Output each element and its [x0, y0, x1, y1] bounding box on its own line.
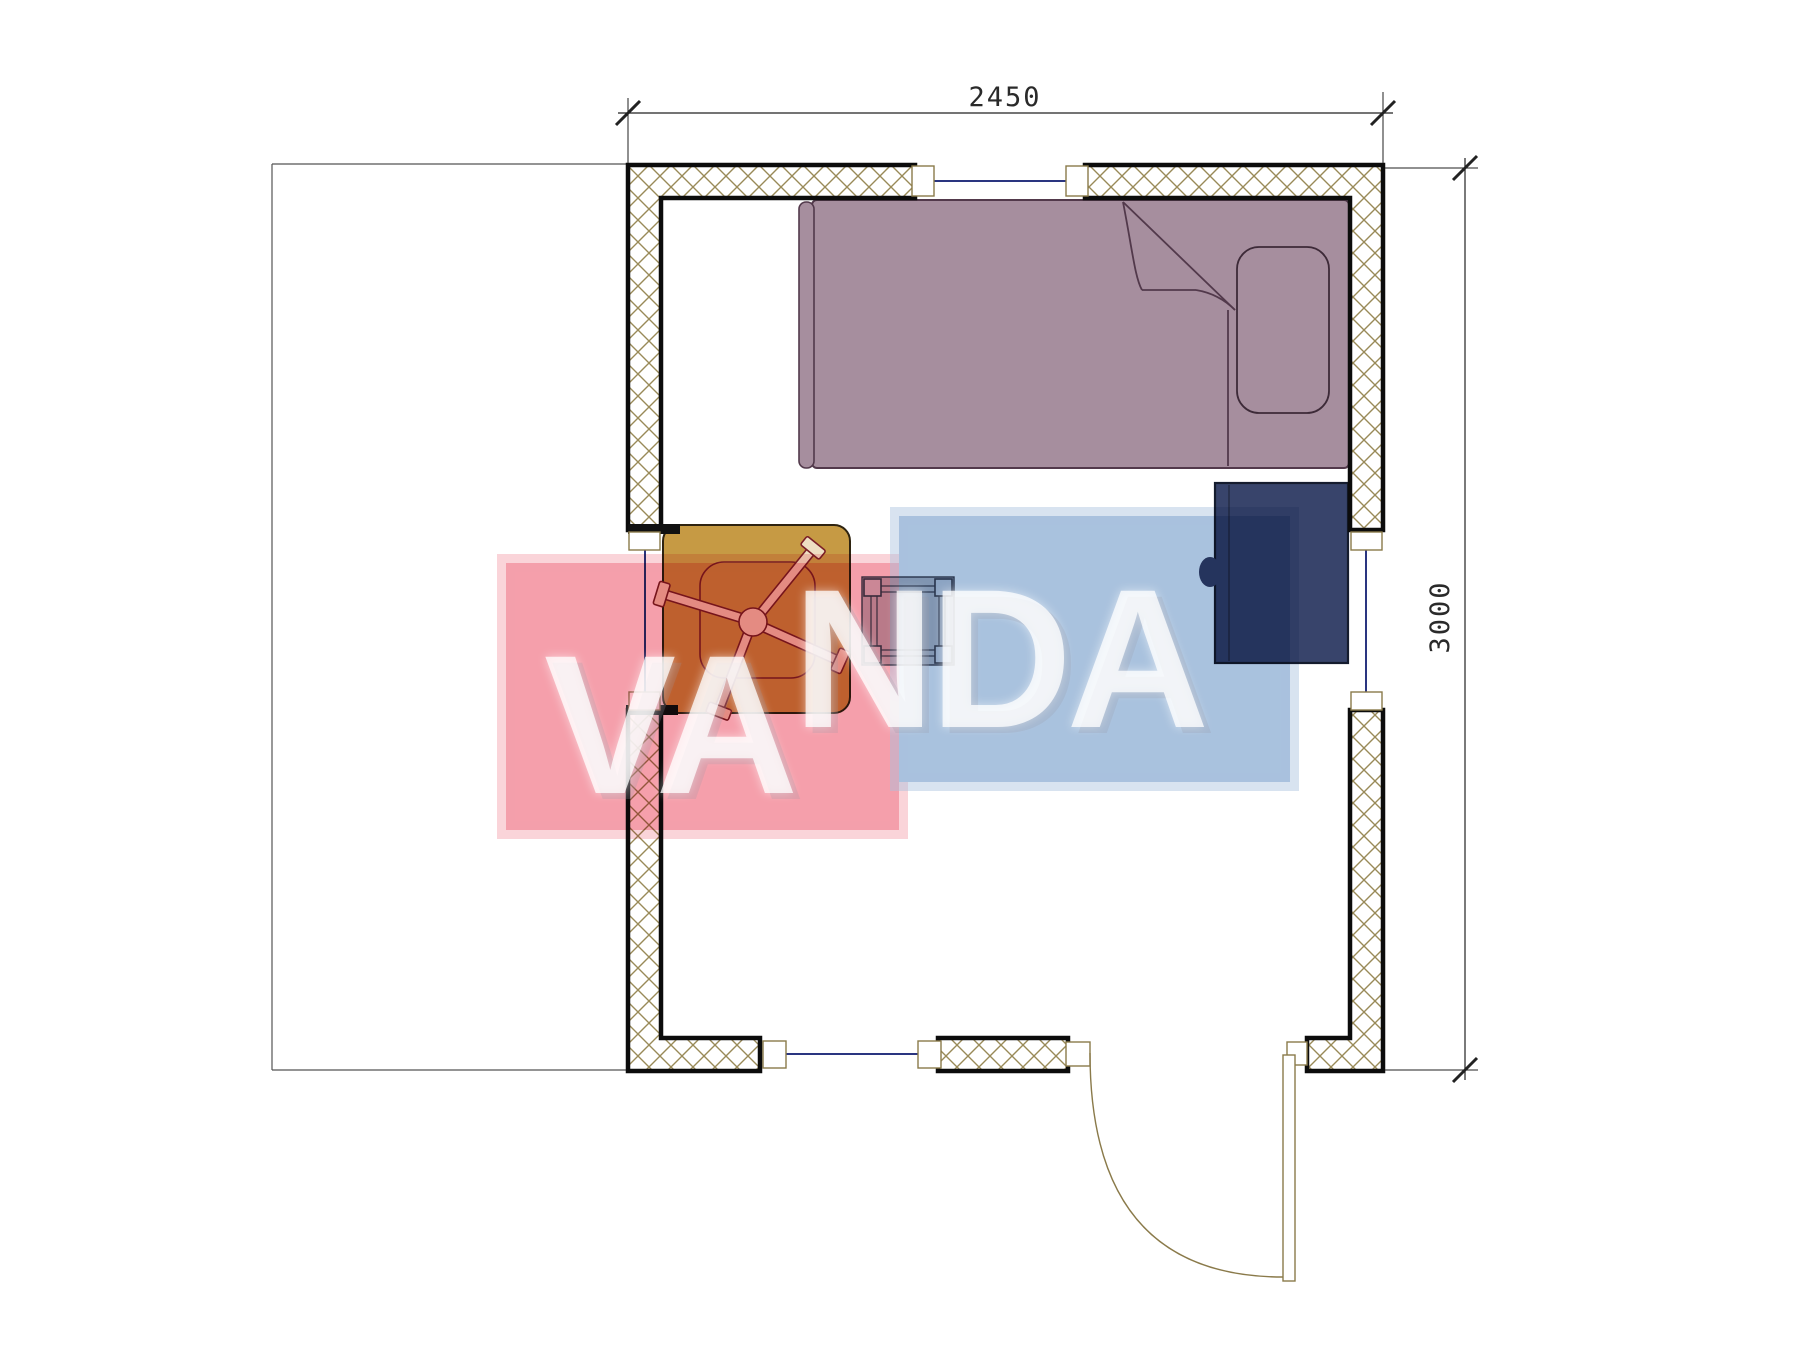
- wall-bottom-middle: [938, 1038, 1068, 1071]
- window-jamb: [1351, 532, 1382, 550]
- dimension-width-label: 2450: [968, 82, 1041, 113]
- floor-plan-canvas: 2450 3000 VANDA: [0, 0, 1800, 1350]
- door-leaf: [1283, 1055, 1295, 1281]
- window-jamb: [918, 1041, 941, 1068]
- door: [1066, 1042, 1307, 1281]
- dimension-height-label: 3000: [1425, 580, 1456, 653]
- watermark-blue-rect: [899, 516, 1290, 782]
- bed-headboard: [799, 202, 814, 468]
- door-swing-arc: [1090, 1053, 1283, 1277]
- window-jamb: [912, 166, 934, 196]
- floor-plan-drawing: 2450 3000: [0, 0, 1800, 1350]
- watermark-blocks: [506, 516, 1290, 830]
- wall-bottom-right: [1307, 710, 1383, 1071]
- door-jamb-left: [1066, 1042, 1090, 1066]
- window-jamb: [629, 532, 660, 550]
- watermark-pink-rect: [506, 563, 899, 830]
- bed: [799, 200, 1349, 468]
- window-jamb: [1066, 166, 1088, 196]
- window-jamb: [763, 1041, 786, 1068]
- window-jamb: [1351, 692, 1382, 710]
- bed-pillow: [1237, 247, 1329, 413]
